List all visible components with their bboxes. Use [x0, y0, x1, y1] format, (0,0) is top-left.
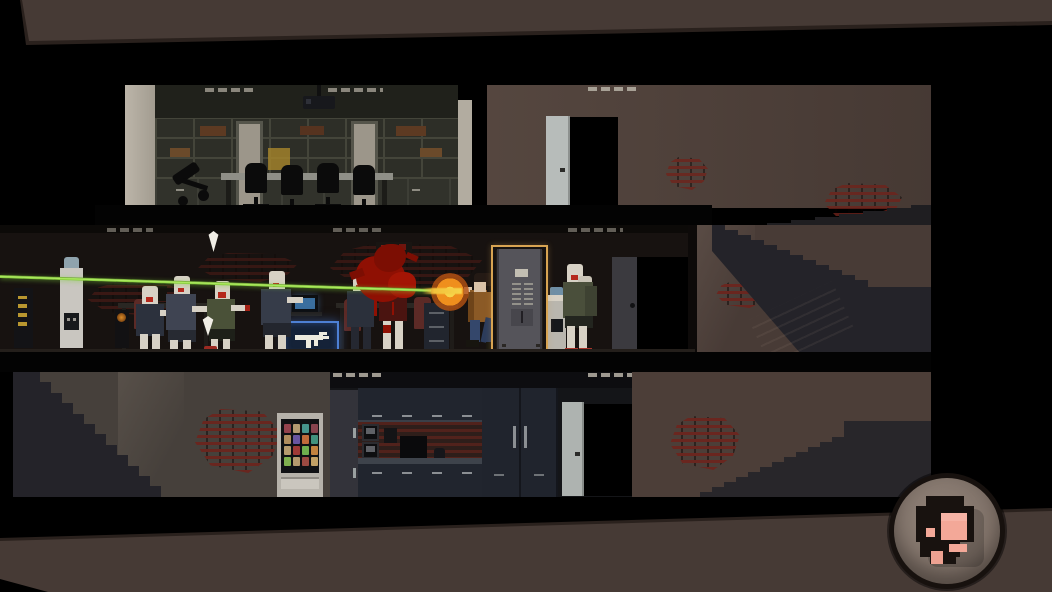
office-chair [243, 163, 269, 207]
dark-doorway[interactable] [584, 404, 632, 496]
roof-band [0, 0, 1052, 42]
appliance-orange-light [115, 310, 129, 348]
books [396, 126, 426, 136]
elevator[interactable] [491, 245, 548, 357]
ceiling-vent [588, 87, 640, 91]
player-jeans [470, 320, 480, 342]
end-wall-strip [125, 85, 155, 207]
door-panel[interactable] [612, 257, 637, 353]
elevator-display [515, 269, 528, 277]
door-handle [575, 452, 580, 456]
snack-machine[interactable] [14, 288, 33, 348]
floor-slab [0, 352, 931, 372]
pixel-face-ear [926, 528, 935, 537]
vending-item [311, 435, 318, 444]
vending-item [302, 424, 309, 433]
pixel-face-chin [931, 551, 943, 564]
door-handle [560, 168, 565, 172]
vending-item [293, 457, 300, 466]
blood-splatter [350, 244, 422, 318]
fallen-office-chair [166, 160, 216, 207]
wall-oven [362, 442, 379, 459]
dark-doorway[interactable] [570, 117, 618, 208]
floor-slab [95, 205, 712, 225]
avatar-button[interactable] [889, 473, 1005, 589]
vending-item [284, 446, 291, 455]
vending-item [302, 457, 309, 466]
vending-item [284, 435, 291, 444]
elevator-door [497, 249, 542, 353]
office-chair [315, 163, 341, 207]
wall-edge [688, 225, 697, 352]
office-chair [279, 165, 305, 209]
pixel-face-skin-highlight [941, 513, 967, 521]
ceiling-vent [333, 228, 383, 232]
ceiling-vent [107, 228, 153, 232]
ceiling-vent [328, 88, 383, 92]
vending-item [302, 446, 309, 455]
vending-item-grid [284, 424, 318, 466]
fridge [330, 390, 358, 497]
vending-item [311, 457, 318, 466]
zombie-pair [541, 262, 603, 360]
ceiling-vent [333, 373, 385, 377]
vending-slot [281, 477, 319, 489]
open-door-panel[interactable] [546, 116, 570, 208]
game-viewport [0, 0, 1052, 592]
ceiling-vent [205, 88, 255, 92]
wall-oven [362, 424, 379, 441]
vending-item [311, 424, 318, 433]
vending-machine[interactable] [277, 413, 323, 497]
wall-strip [458, 100, 472, 207]
upper-cabinets [358, 388, 482, 422]
table-leg [226, 180, 231, 207]
dark-doorway[interactable] [637, 257, 688, 353]
water-cooler[interactable] [60, 257, 84, 352]
vending-item [293, 435, 300, 444]
muzzle-flash [428, 270, 472, 314]
elevator-buttons [512, 281, 521, 305]
open-door-panel[interactable] [562, 402, 584, 496]
books [200, 126, 226, 136]
vending-item [284, 424, 291, 433]
vending-item [293, 446, 300, 455]
books [170, 148, 190, 157]
elevator-buttons [524, 281, 533, 305]
ceiling-vent [568, 228, 623, 232]
pixel-face-mouth [949, 544, 967, 552]
vending-item [302, 435, 309, 444]
vending-item [293, 424, 300, 433]
wall-gap [472, 112, 487, 207]
table-leg [382, 180, 387, 207]
door-handle [630, 303, 635, 308]
projector-lens [306, 99, 311, 104]
vending-item [311, 446, 318, 455]
elevator-card-panel [511, 309, 533, 326]
tall-cabinet [482, 388, 558, 497]
ceiling-projector [303, 96, 335, 109]
books [420, 148, 442, 157]
lower-cabinets [358, 464, 482, 497]
vending-window [281, 419, 319, 473]
vending-item [284, 457, 291, 466]
cabinet-handle [412, 189, 420, 191]
coffee-machine [384, 428, 397, 443]
books [300, 126, 324, 135]
office-chair [351, 165, 377, 209]
